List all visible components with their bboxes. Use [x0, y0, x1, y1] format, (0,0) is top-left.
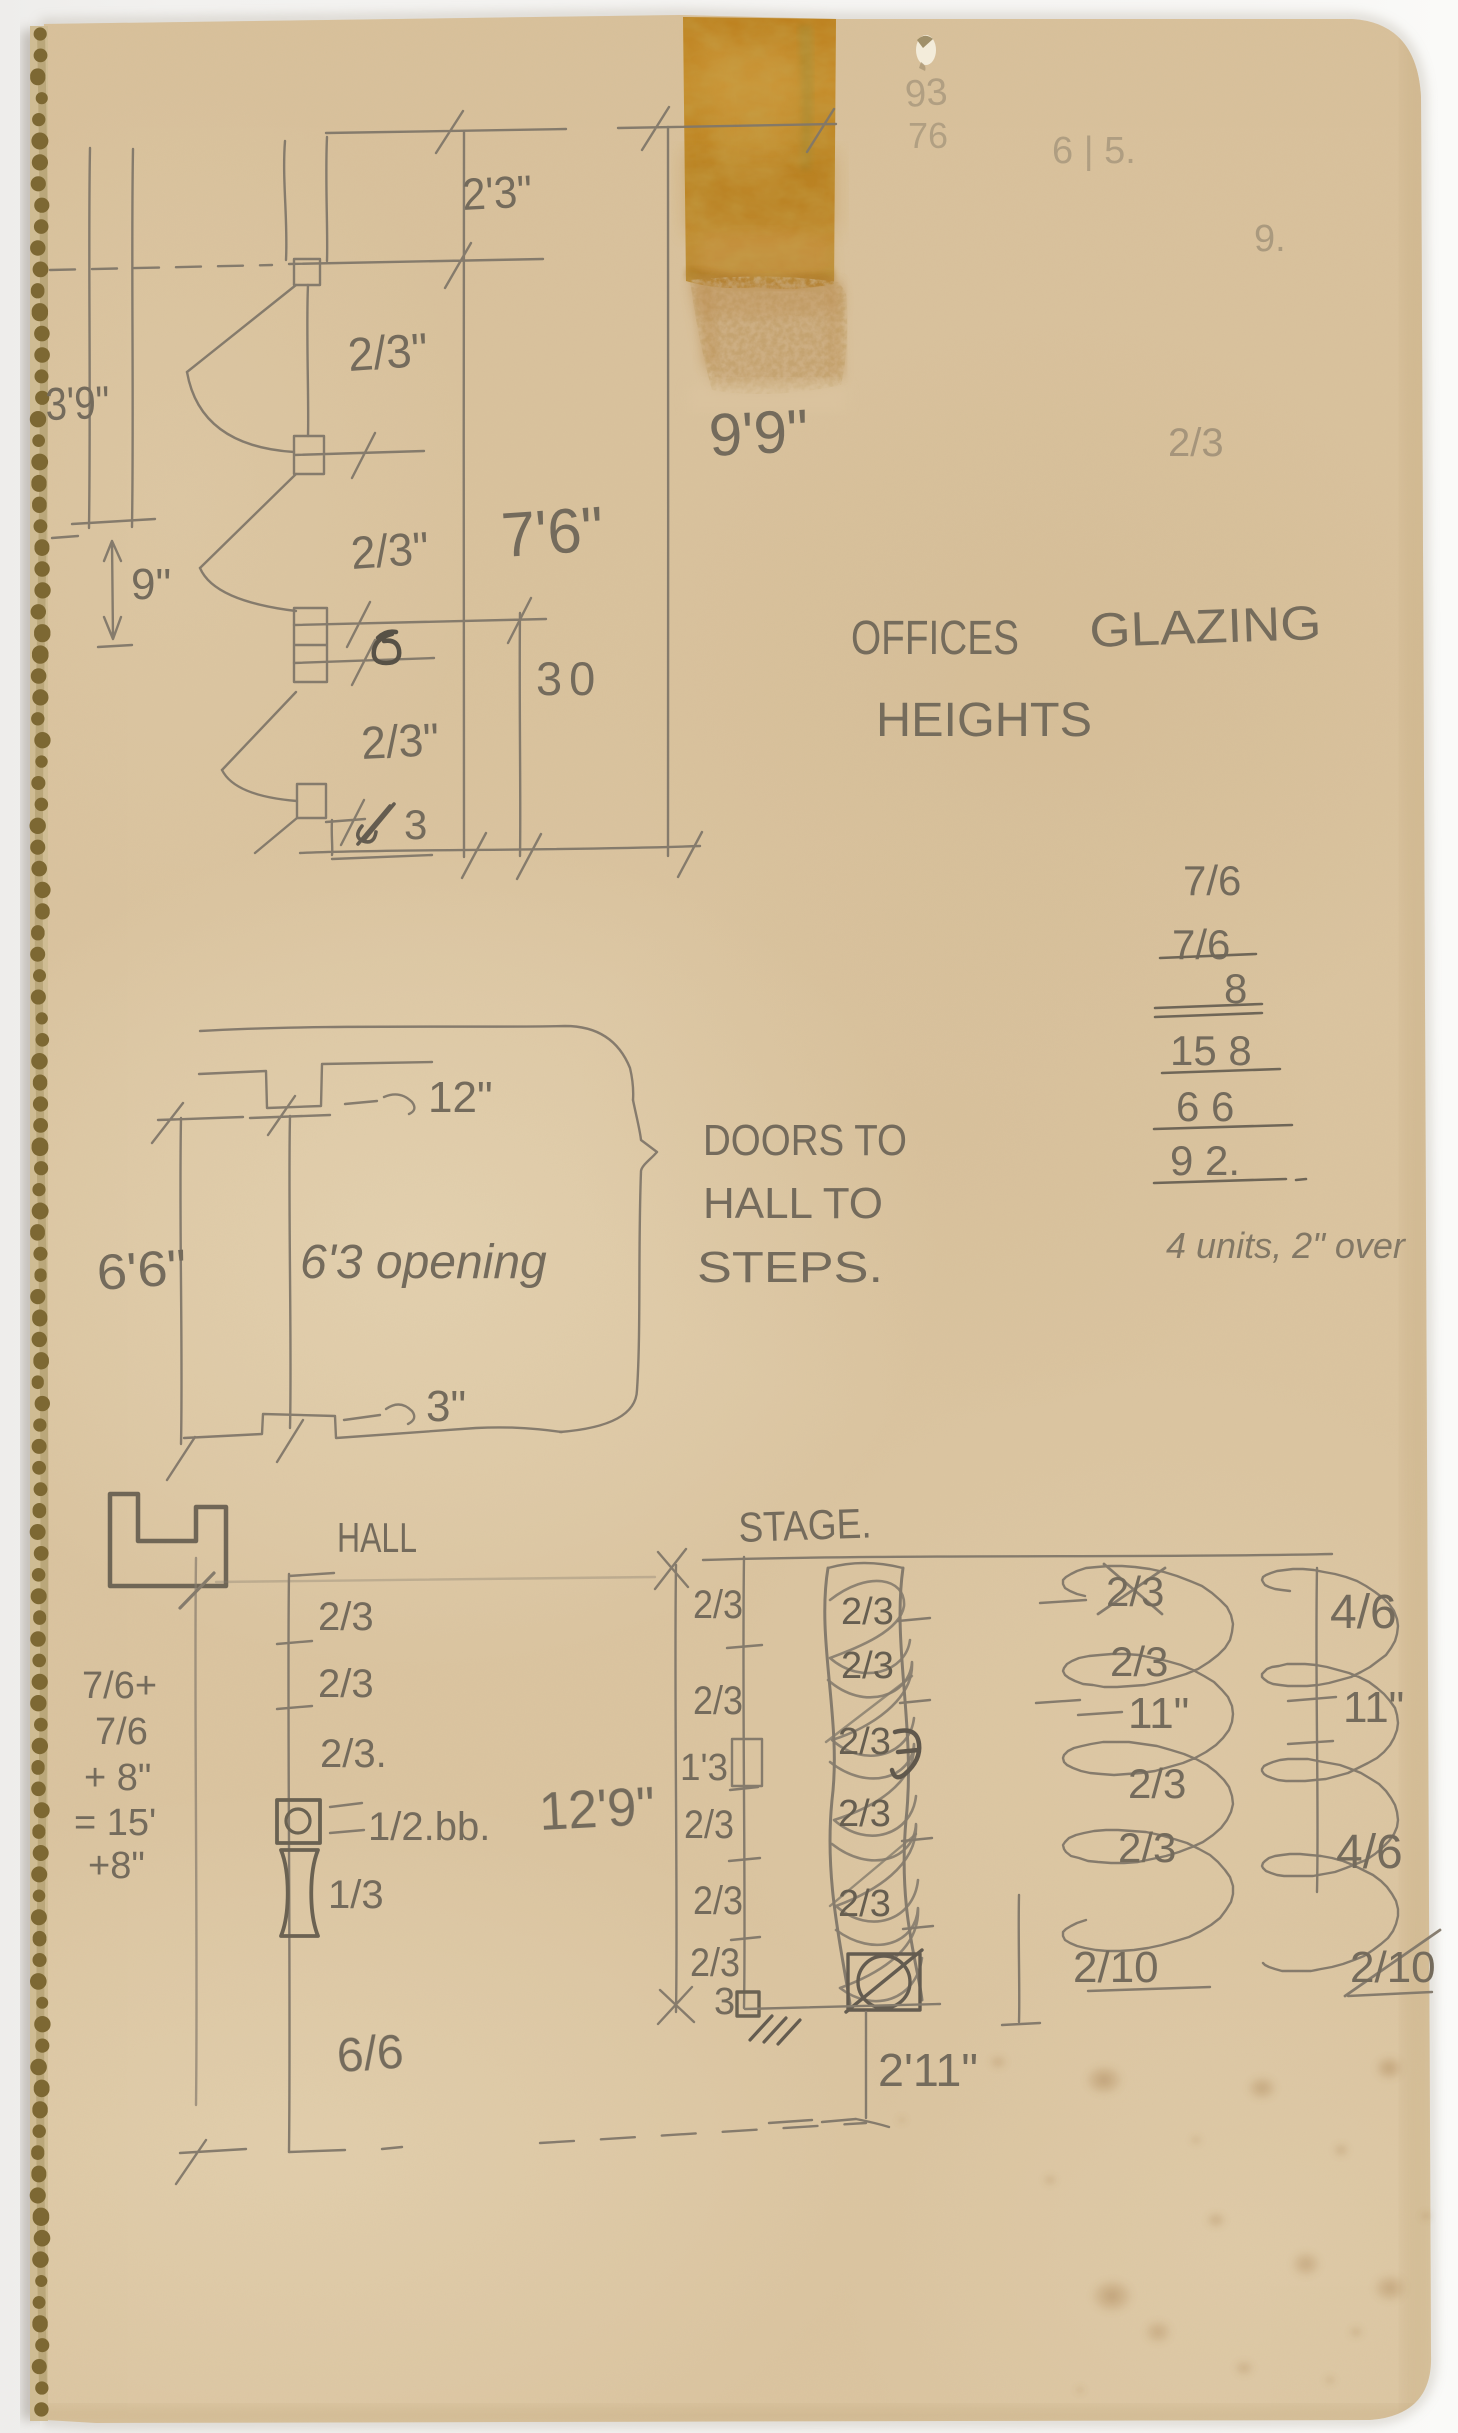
- svg-text:93: 93: [904, 71, 949, 116]
- svg-text:76: 76: [908, 115, 948, 156]
- svg-text:2/3: 2/3: [693, 1679, 743, 1723]
- svg-text:3'9": 3'9": [45, 376, 111, 430]
- svg-text:3: 3: [714, 1981, 735, 2023]
- svg-text:2/3: 2/3: [1128, 1760, 1186, 1807]
- svg-text:2/10: 2/10: [1350, 1943, 1436, 1992]
- svg-text:11": 11": [1343, 1683, 1404, 1732]
- svg-text:3: 3: [404, 801, 427, 848]
- svg-text:2/3: 2/3: [318, 1595, 374, 1639]
- svg-text:2/3": 2/3": [346, 323, 430, 381]
- svg-text:2'11": 2'11": [878, 2044, 978, 2096]
- svg-text:2/3: 2/3: [1110, 1638, 1168, 1685]
- svg-text:9.: 9.: [1254, 218, 1286, 260]
- svg-text:STAGE.: STAGE.: [738, 1499, 873, 1551]
- svg-text:2/3: 2/3: [841, 1645, 894, 1687]
- svg-text:2'3": 2'3": [461, 165, 534, 220]
- svg-text:12": 12": [428, 1073, 493, 1122]
- svg-text:2/3: 2/3: [693, 1583, 743, 1627]
- svg-text:STEPS.: STEPS.: [697, 1243, 883, 1292]
- svg-text:HALL: HALL: [337, 1514, 417, 1561]
- svg-text:9 2.: 9 2.: [1170, 1137, 1240, 1184]
- svg-text:30: 30: [536, 652, 602, 705]
- svg-text:9": 9": [131, 560, 171, 609]
- svg-text:+ 8": + 8": [84, 1757, 151, 1799]
- svg-text:4 units, 2" over: 4 units, 2" over: [1166, 1225, 1407, 1266]
- svg-text:6 | 5.: 6 | 5.: [1052, 130, 1136, 172]
- svg-text:2/3: 2/3: [1168, 421, 1224, 465]
- svg-text:2/3: 2/3: [838, 1883, 891, 1925]
- svg-text:+8": +8": [88, 1845, 145, 1887]
- svg-text:12'9": 12'9": [537, 1776, 656, 1842]
- svg-text:2/3: 2/3: [693, 1879, 743, 1923]
- svg-text:9'9": 9'9": [707, 397, 810, 469]
- svg-text:2/3": 2/3": [360, 713, 441, 769]
- svg-text:2/3: 2/3: [1106, 1568, 1164, 1615]
- svg-text:1/2.bb.: 1/2.bb.: [368, 1805, 490, 1849]
- svg-text:11": 11": [1128, 1689, 1189, 1738]
- svg-text:7/6: 7/6: [1172, 921, 1230, 968]
- svg-text:1'3: 1'3: [680, 1747, 728, 1789]
- svg-text:6 6: 6 6: [1176, 1083, 1234, 1130]
- svg-text:HEIGHTS: HEIGHTS: [876, 694, 1092, 747]
- svg-text:2/3.: 2/3.: [320, 1732, 387, 1776]
- svg-text:6/6: 6/6: [335, 2025, 405, 2083]
- svg-text:6'6": 6'6": [95, 1239, 189, 1301]
- svg-text:7/6: 7/6: [95, 1711, 148, 1753]
- svg-text:2/3: 2/3: [690, 1941, 740, 1985]
- svg-text:= 15': = 15': [74, 1802, 156, 1844]
- svg-text:DOORS TO: DOORS TO: [703, 1116, 907, 1165]
- svg-text:3": 3": [426, 1382, 466, 1431]
- svg-text:2/3: 2/3: [318, 1662, 374, 1706]
- svg-text:15 8: 15 8: [1170, 1027, 1252, 1074]
- svg-text:2/3: 2/3: [841, 1591, 894, 1633]
- svg-text:2/3: 2/3: [684, 1803, 734, 1847]
- svg-text:1/3: 1/3: [328, 1873, 384, 1917]
- svg-text:6'3 opening: 6'3 opening: [300, 1236, 547, 1289]
- svg-text:HALL TO: HALL TO: [703, 1179, 883, 1228]
- svg-text:2/3: 2/3: [1118, 1824, 1176, 1871]
- svg-text:7/6: 7/6: [1183, 857, 1241, 904]
- svg-text:4/6: 4/6: [1336, 1826, 1403, 1879]
- svg-text:7/6+: 7/6+: [82, 1665, 157, 1707]
- svg-text:2/3": 2/3": [349, 522, 430, 579]
- svg-text:4/6: 4/6: [1330, 1586, 1397, 1639]
- svg-text:2/3: 2/3: [838, 1793, 891, 1835]
- svg-text:OFFICES: OFFICES: [851, 612, 1019, 665]
- svg-text:2/3: 2/3: [838, 1721, 891, 1763]
- svg-text:2/10: 2/10: [1073, 1943, 1159, 1992]
- svg-text:7'6": 7'6": [499, 494, 606, 571]
- svg-text:GLAZING: GLAZING: [1089, 597, 1323, 658]
